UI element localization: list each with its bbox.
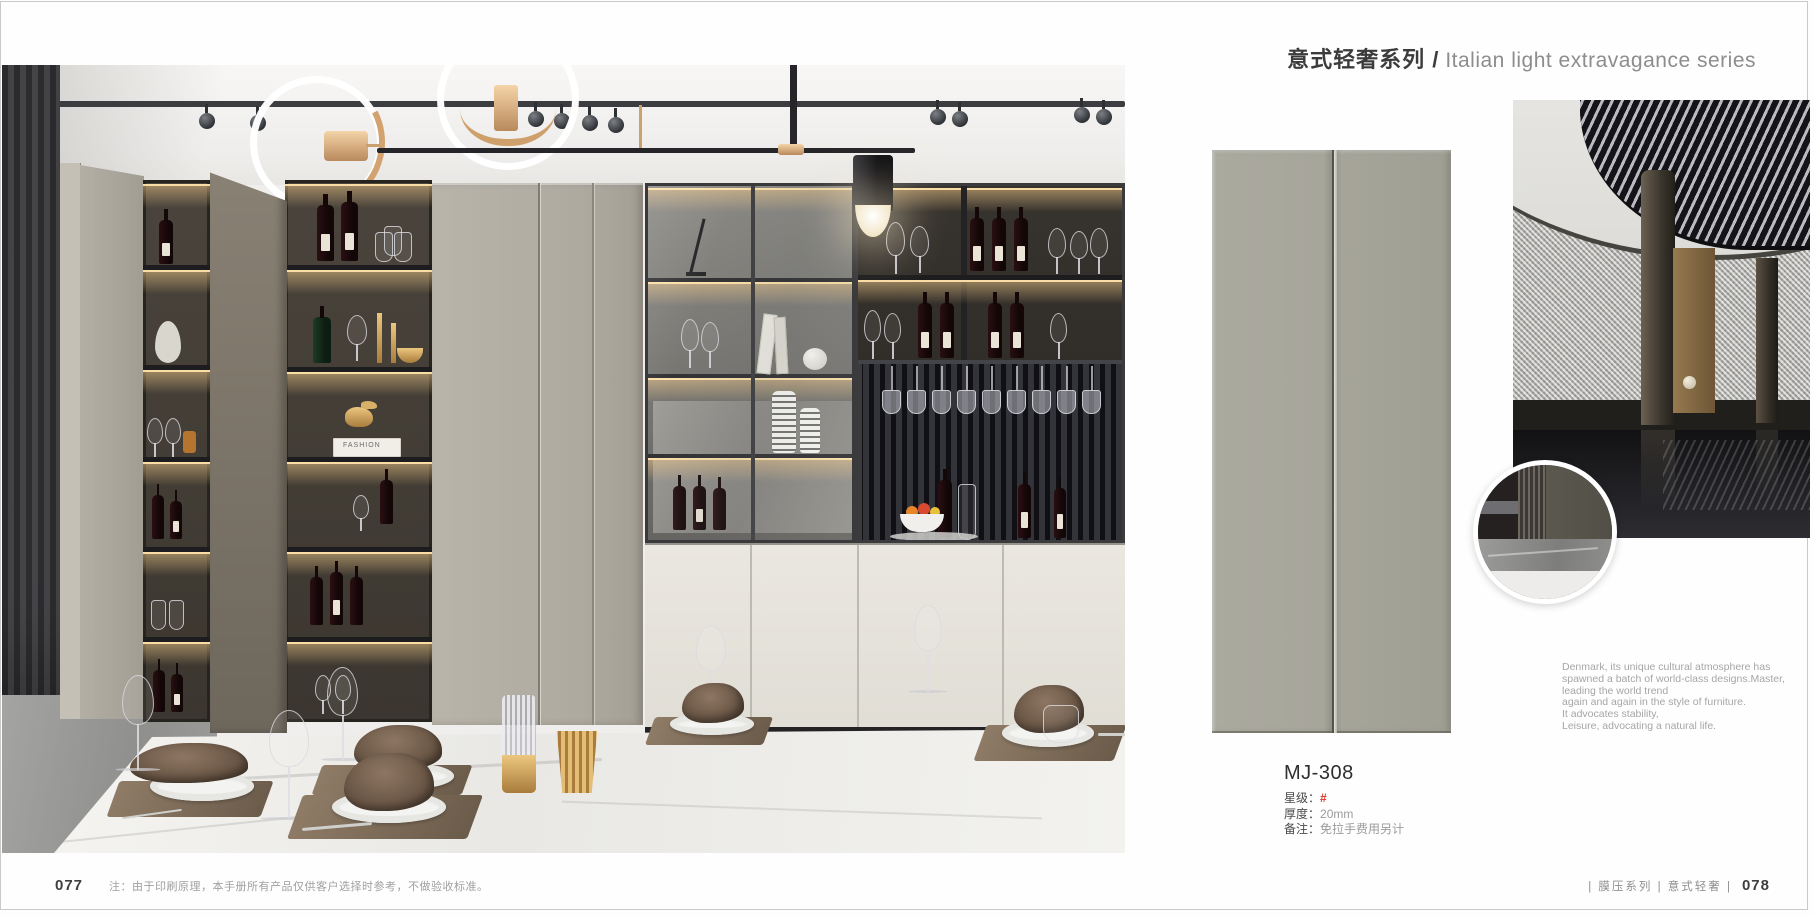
bottle xyxy=(170,501,182,539)
hanging-glass xyxy=(1032,390,1051,414)
cabinet-door-open xyxy=(80,165,144,719)
spec-label: 星级： xyxy=(1284,791,1320,805)
shelf-glow xyxy=(858,280,1122,304)
bronze-column xyxy=(1756,258,1778,423)
cabinet-door-open xyxy=(60,163,81,719)
fork xyxy=(1098,733,1125,736)
spec-value: 20mm xyxy=(1320,807,1353,821)
product-code: MJ-308 xyxy=(1284,762,1404,785)
liquor-bottle xyxy=(341,202,358,261)
shelf-glow xyxy=(143,552,210,576)
slat-wine-niche xyxy=(858,360,1125,543)
page-number-right: 078 xyxy=(1742,877,1770,894)
track-spotlight xyxy=(199,113,215,129)
panel-seam xyxy=(538,183,540,725)
wine-glass xyxy=(886,222,905,256)
gold-bowl xyxy=(397,348,423,363)
shelf-glow xyxy=(143,462,210,486)
track-spotlight xyxy=(1074,107,1090,123)
cabinet-seam xyxy=(1002,545,1004,735)
table-wine-glass xyxy=(327,667,358,716)
liquor-bottle xyxy=(159,220,173,264)
bottle xyxy=(310,577,323,625)
glass-cabinet xyxy=(645,183,855,543)
brass-pendant-horizontal xyxy=(324,131,368,161)
cabinet-seam xyxy=(750,545,752,735)
wine-bottle xyxy=(1010,303,1024,358)
glass xyxy=(151,600,166,630)
shelf-glow xyxy=(285,184,432,208)
shelf-glow xyxy=(285,552,432,576)
track-spotlight xyxy=(1096,109,1112,125)
bottle xyxy=(171,674,183,712)
brass-stem xyxy=(366,144,380,147)
wine-bottle xyxy=(1054,488,1066,538)
page-number-left: 077 xyxy=(55,877,83,894)
track-spotlight xyxy=(952,111,968,127)
cabinet-seam xyxy=(857,545,859,735)
hanging-glass xyxy=(882,390,901,414)
wine-shelf-unit xyxy=(855,183,1125,543)
inset-marble-white xyxy=(1478,571,1612,599)
wine-glass xyxy=(1048,228,1066,258)
shelf-glow xyxy=(858,188,1122,212)
shelf-glow xyxy=(285,372,432,396)
track-spotlight xyxy=(582,115,598,131)
wine-bottle xyxy=(988,303,1002,358)
series-tags: | 膜压系列 | 意式轻奢 | xyxy=(1588,878,1732,894)
serving-tray xyxy=(890,532,978,541)
table-wine-glass xyxy=(914,605,942,651)
shelf-glow xyxy=(285,270,432,294)
footer-right: | 膜压系列 | 意式轻奢 | 078 xyxy=(1588,877,1770,894)
wine-bottle xyxy=(1014,218,1028,271)
stemware-rail xyxy=(858,360,1125,364)
wine-glass xyxy=(1070,231,1088,259)
detail-inset-circle xyxy=(1473,460,1617,604)
wine-glass xyxy=(910,226,929,257)
display-shelf-column: FASHION xyxy=(285,180,432,722)
vase xyxy=(155,321,181,363)
table-wine-glass xyxy=(269,710,309,767)
series-title-zh: 意式轻奢系列 / xyxy=(1287,47,1439,72)
bottle xyxy=(153,670,165,712)
description-line: spawned a batch of world-class designs.M… xyxy=(1562,674,1802,686)
display-shelf-column xyxy=(143,180,210,722)
panel-sample-mj308 xyxy=(1212,150,1451,733)
wood-panel xyxy=(1673,248,1715,413)
deer-figurine xyxy=(345,407,373,427)
spec-value: # xyxy=(1320,791,1327,805)
shelf-glow xyxy=(285,642,432,666)
curtain xyxy=(2,65,60,713)
shelf-glow xyxy=(143,270,210,294)
brass-pendant-vertical xyxy=(494,85,518,131)
spec-label: 备注： xyxy=(1284,822,1320,836)
wine-glass xyxy=(1050,313,1067,343)
decanter xyxy=(958,484,976,540)
inset-panel-grey xyxy=(1546,465,1612,539)
napkin xyxy=(130,743,248,783)
footer-left: 077 注：由于印刷原理，本手册所有产品仅供客户选择时参考，不做验收标准。 xyxy=(55,877,489,894)
hanging-glass xyxy=(982,390,1001,414)
shelf-glow xyxy=(143,370,210,394)
glass xyxy=(169,600,184,630)
door-knob xyxy=(1683,376,1696,389)
pendant-rod xyxy=(377,148,915,153)
hanging-glass xyxy=(932,390,951,414)
bottle xyxy=(152,495,164,539)
bottle xyxy=(330,572,343,625)
hanging-glass xyxy=(1057,390,1076,414)
hanging-glass xyxy=(907,390,926,414)
inset-marble-grey xyxy=(1478,539,1612,571)
wood-door-open xyxy=(210,161,287,733)
panel-groove-highlight xyxy=(1334,150,1337,733)
wine-glass xyxy=(347,315,367,345)
wine-bottle xyxy=(918,303,932,358)
hanging-glass xyxy=(1082,390,1101,414)
glass xyxy=(384,226,402,256)
table-wine-glass xyxy=(696,625,726,671)
glass-reflection xyxy=(648,186,852,540)
shelf-glow xyxy=(285,462,432,486)
inset-lit-edge xyxy=(1478,501,1518,514)
product-info: MJ-308 星级：# 厚度：20mm 备注：免拉手费用另计 xyxy=(1284,762,1404,838)
bottle xyxy=(350,577,363,625)
spec-label: 厚度： xyxy=(1284,807,1320,821)
pendant-lamp xyxy=(853,155,893,211)
wine-glass xyxy=(864,310,881,342)
wine-glass xyxy=(353,495,369,519)
spec-note: 备注：免拉手费用另计 xyxy=(1284,822,1404,838)
brass-connector xyxy=(778,144,804,155)
wine-bottle xyxy=(938,480,952,538)
footer-note: 注：由于印刷原理，本手册所有产品仅供客户选择时参考，不做验收标准。 xyxy=(109,878,489,894)
bronze-column xyxy=(1641,170,1675,425)
table-wine-glass xyxy=(122,675,154,725)
description-line: Leisure, advocating a natural life. xyxy=(1562,721,1802,733)
wine-glass xyxy=(147,418,163,444)
description-paragraph: Denmark, its unique cultural atmosphere … xyxy=(1562,662,1802,733)
hanging-glass xyxy=(1007,390,1026,414)
liquor-bottle xyxy=(317,205,334,261)
wine-bottle xyxy=(1018,484,1031,538)
marble-vein xyxy=(562,801,1042,820)
spec-star: 星级：# xyxy=(1284,791,1404,807)
bottle xyxy=(380,480,393,524)
green-bottle xyxy=(313,317,331,363)
floor-sparkle xyxy=(1663,440,1810,510)
hanging-glass xyxy=(957,390,976,414)
inset-slat-band xyxy=(1518,465,1546,539)
vase-gold-base xyxy=(502,755,536,793)
wine-glass xyxy=(165,418,181,444)
pendant-pole xyxy=(790,65,797,151)
spec-thickness: 厚度：20mm xyxy=(1284,807,1404,823)
wine-bottle xyxy=(940,303,954,358)
shelf-glow xyxy=(143,184,210,208)
brass-hanger-rod xyxy=(639,105,642,149)
track-spotlight xyxy=(930,109,946,125)
napkin xyxy=(682,683,744,723)
showroom-photo: FASHION xyxy=(2,65,1125,853)
spec-value: 免拉手费用另计 xyxy=(1320,822,1404,836)
track-spotlight xyxy=(608,117,624,133)
book-spine-text: FASHION xyxy=(343,442,381,449)
panel-seam xyxy=(592,183,594,725)
wine-bottle xyxy=(970,218,984,271)
mj308-door-panels xyxy=(432,183,643,725)
shelf-divider xyxy=(961,186,967,360)
water-glass xyxy=(1043,705,1079,743)
wine-glass xyxy=(884,313,901,343)
candlestick xyxy=(377,313,382,363)
inset-vein xyxy=(1488,547,1598,557)
wine-glass xyxy=(1090,228,1108,258)
candlestick xyxy=(391,323,396,363)
series-title-en: Italian light extravagance series xyxy=(1445,49,1756,72)
amber-jar xyxy=(183,431,196,453)
header: 意式轻奢系列 /Italian light extravagance serie… xyxy=(1287,42,1756,74)
wine-bottle xyxy=(992,218,1006,271)
